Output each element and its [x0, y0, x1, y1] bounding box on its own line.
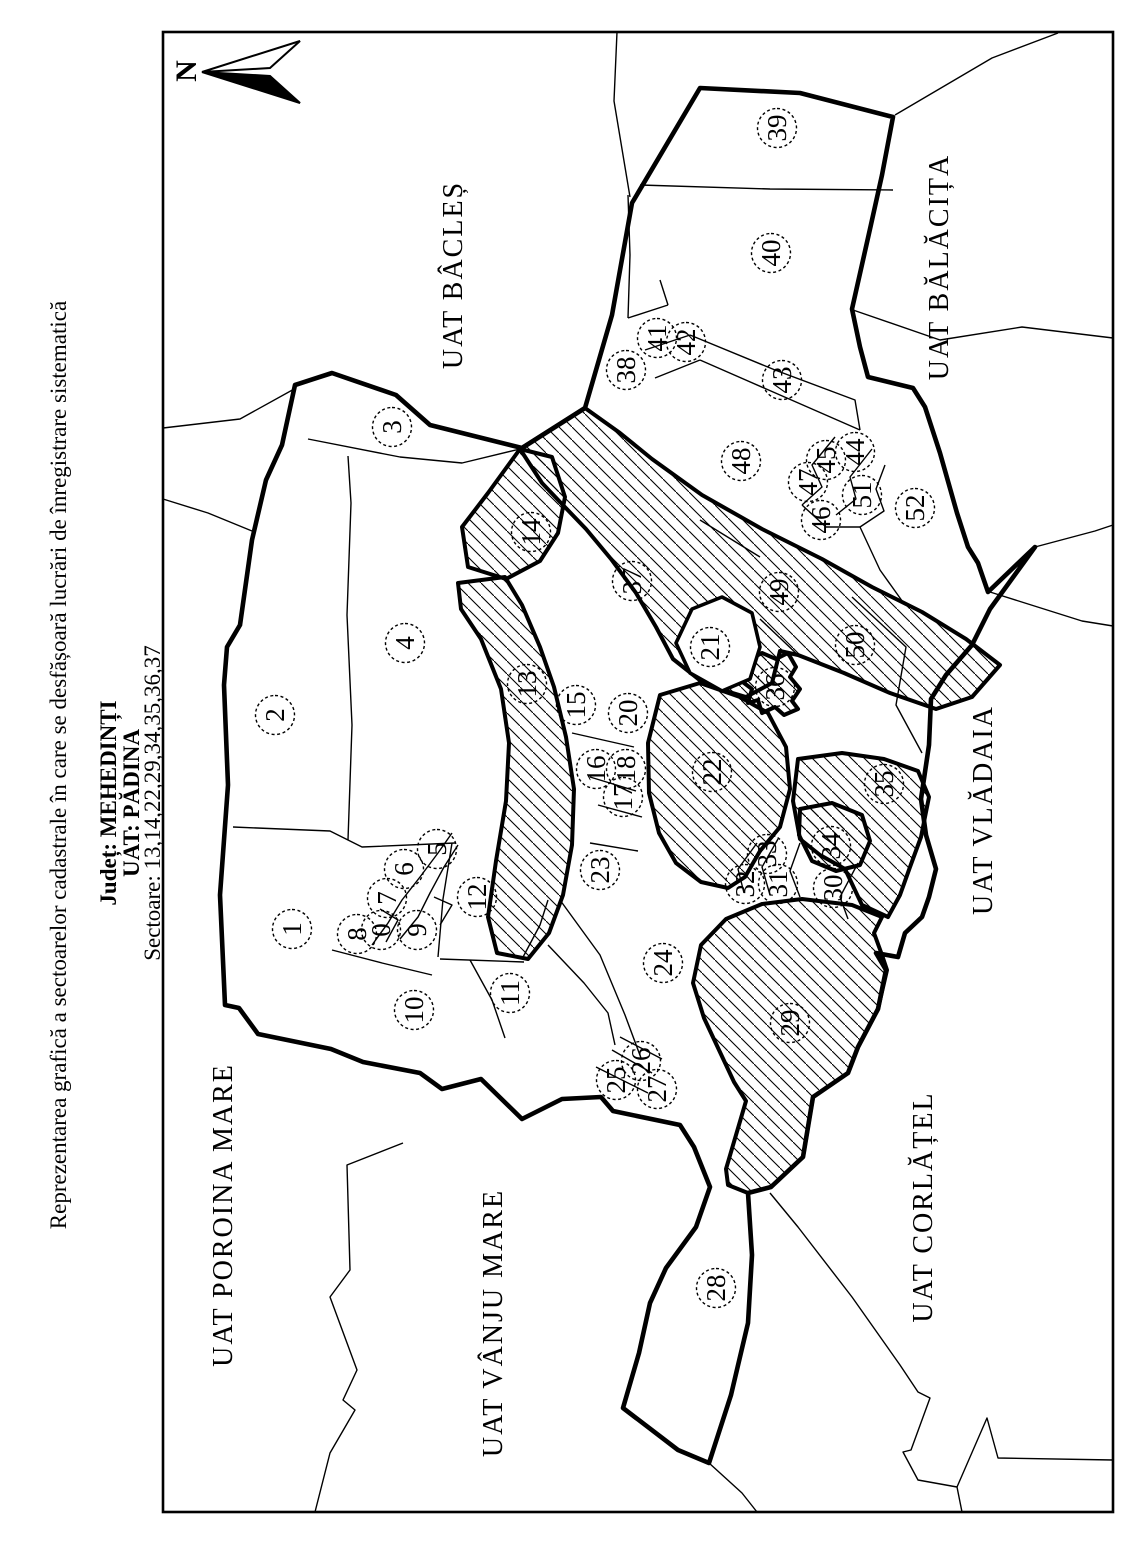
sector-number-40: 40	[756, 240, 786, 267]
sector-marker-3: 3	[373, 408, 412, 447]
sector-number-43: 43	[767, 367, 797, 394]
sector-marker-22: 22	[693, 753, 732, 792]
sector-marker-18: 18	[607, 750, 646, 789]
sector-number-35: 35	[869, 771, 899, 798]
sector-number-37: 37	[617, 568, 647, 595]
sector-number-13: 13	[512, 671, 542, 698]
sector-number-47: 47	[793, 469, 823, 496]
uat-label: UAT CORLĂȚEL	[908, 1091, 939, 1322]
sector-marker-23: 23	[581, 851, 620, 890]
sector-number-42: 42	[671, 329, 701, 356]
sector-number-7: 7	[372, 891, 402, 905]
sector-marker-20: 20	[609, 694, 648, 733]
sector-number-11: 11	[495, 980, 525, 1006]
sector-number-24: 24	[648, 949, 678, 977]
sector-number-33: 33	[752, 841, 782, 868]
sector-number-9: 9	[402, 923, 432, 937]
sector-marker-35: 35	[865, 765, 904, 804]
sector-marker-4: 4	[386, 624, 425, 663]
sector-number-20: 20	[613, 700, 643, 727]
sector-marker-27: 27	[638, 1070, 677, 1109]
sector-number-31: 31	[763, 871, 793, 898]
uat-label: UAT BÂCLEȘ	[438, 181, 469, 369]
sector-marker-43: 43	[763, 361, 802, 400]
sector-number-49: 49	[764, 579, 794, 606]
sector-number-46: 46	[806, 507, 836, 534]
uat-label: UAT VLĂDAIA	[968, 705, 999, 915]
sector-marker-28: 28	[697, 1269, 736, 1308]
sector-marker-12: 12	[458, 878, 497, 917]
map-subtitle-sectoare: Sectoare: 13,14,22,29,34,35,36,37	[140, 645, 165, 961]
sector-number-51: 51	[847, 482, 877, 509]
sector-marker-49: 49	[760, 573, 799, 612]
sector-marker-7: 7	[368, 879, 407, 918]
sector-number-27: 27	[642, 1076, 672, 1103]
north-arrow-label: N	[170, 60, 203, 82]
sector-number-23: 23	[585, 857, 615, 884]
sector-marker-15: 15	[557, 686, 596, 725]
sector-marker-46: 46	[802, 501, 841, 540]
sector-number-18: 18	[611, 756, 641, 783]
sector-number-32: 32	[730, 871, 760, 898]
sector-number-29: 29	[775, 1010, 805, 1037]
sector-marker-50: 50	[836, 626, 875, 665]
sector-marker-48: 48	[722, 442, 761, 481]
cadastral-map-page: Reprezentarea grafică a sectoarelor cada…	[0, 0, 1128, 1545]
sector-number-2: 2	[260, 708, 290, 722]
sector-marker-8: 8	[338, 915, 377, 954]
uat-label: UAT BĂLĂCIȚA	[924, 154, 955, 380]
sector-marker-14: 14	[512, 513, 551, 552]
sector-number-50: 50	[840, 632, 870, 659]
sector-marker-9: 9	[398, 911, 437, 950]
sector-number-5: 5	[422, 842, 452, 856]
sector-number-15: 15	[561, 692, 591, 719]
sector-marker-37: 37	[613, 562, 652, 601]
sector-number-39: 39	[762, 115, 792, 142]
uat-label: UAT VÂNJU MARE	[478, 1189, 509, 1457]
sector-number-52: 52	[900, 495, 930, 522]
sector-marker-21: 21	[691, 628, 730, 667]
sector-marker-5: 5	[418, 830, 457, 869]
sector-number-22: 22	[697, 759, 727, 786]
sector-marker-11: 11	[491, 974, 530, 1013]
sector-marker-34: 34	[812, 827, 851, 866]
sector-marker-39: 39	[758, 109, 797, 148]
sector-marker-38: 38	[607, 351, 646, 390]
sector-marker-24: 24	[644, 944, 683, 983]
sector-marker-33: 33	[748, 835, 787, 874]
sector-number-48: 48	[726, 448, 756, 475]
sector-number-10: 10	[399, 997, 429, 1024]
sector-number-28: 28	[701, 1275, 731, 1302]
sector-number-4: 4	[390, 636, 420, 650]
sector-number-34: 34	[816, 832, 846, 860]
sector-marker-36: 36	[756, 668, 795, 707]
sector-marker-10: 10	[395, 991, 434, 1030]
sector-number-12: 12	[462, 884, 492, 911]
sector-number-30: 30	[818, 875, 848, 902]
sector-marker-40: 40	[752, 234, 791, 273]
sector-marker-51: 51	[843, 476, 882, 515]
sector-marker-2: 2	[256, 696, 295, 735]
map-title: Reprezentarea grafică a sectoarelor cada…	[46, 301, 71, 1229]
sector-number-1: 1	[277, 922, 307, 936]
sector-marker-13: 13	[508, 665, 547, 704]
uat-label: UAT POROINA MARE	[208, 1063, 239, 1367]
sector-marker-30: 30	[814, 869, 853, 908]
sector-number-14: 14	[516, 518, 546, 546]
sector-marker-29: 29	[771, 1004, 810, 1043]
sector-number-6: 6	[389, 862, 419, 876]
sector-marker-1: 1	[273, 910, 312, 949]
sector-number-36: 36	[760, 674, 790, 701]
sector-marker-42: 42	[667, 323, 706, 362]
sector-number-21: 21	[695, 634, 725, 661]
sector-number-8: 8	[342, 927, 372, 941]
sector-marker-52: 52	[896, 489, 935, 528]
sector-number-38: 38	[611, 357, 641, 384]
sector-marker-47: 47	[789, 463, 828, 502]
sector-number-3: 3	[377, 420, 407, 434]
